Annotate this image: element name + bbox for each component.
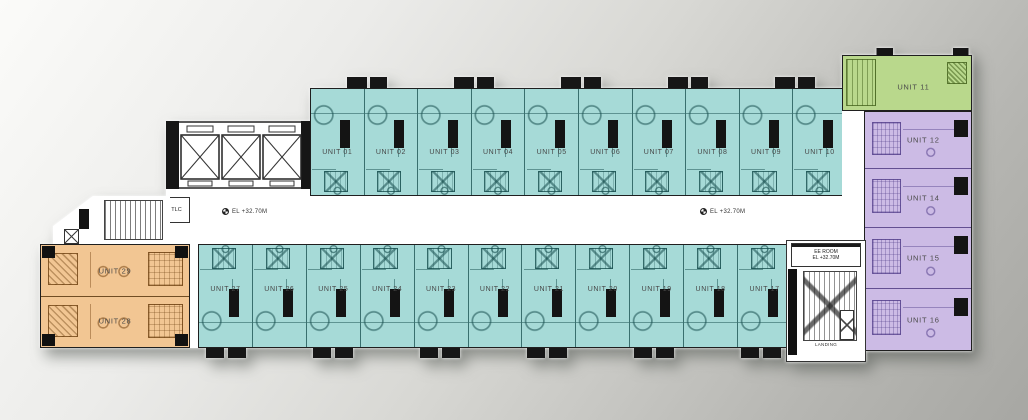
- unit-label: UNIT 17: [749, 286, 779, 293]
- unit-label: UNIT 27: [210, 286, 240, 293]
- unit-block-left: UNIT 29 UNIT 28: [40, 244, 190, 348]
- unit-floorplan-detail: [684, 245, 737, 347]
- unit-14: UNIT 14: [865, 168, 971, 227]
- unit-floorplan-detail: [576, 245, 629, 347]
- unit-floorplan-detail: [633, 89, 686, 195]
- unit-label: UNIT 18: [696, 286, 726, 293]
- unit-floorplan-detail: [307, 245, 360, 347]
- unit-06: UNIT 06: [578, 89, 632, 195]
- stair-right: EE ROOM EL +32.70M LANDING: [786, 240, 866, 362]
- unit-04: UNIT 04: [471, 89, 525, 195]
- unit-label: UNIT 19: [642, 286, 672, 293]
- unit-07: UNIT 07: [632, 89, 686, 195]
- unit-label: UNIT 15: [907, 254, 940, 263]
- unit-16: UNIT 16: [865, 288, 971, 350]
- corridor-right: [842, 111, 866, 244]
- shaft-box: [64, 229, 79, 244]
- unit-label: UNIT 02: [376, 149, 406, 156]
- unit-label: UNIT 20: [588, 286, 618, 293]
- unit-24: UNIT 24: [360, 245, 414, 347]
- unit-17: UNIT 17: [737, 245, 791, 347]
- unit-27: UNIT 27: [199, 245, 252, 347]
- ee-room-label: EE ROOM: [814, 250, 838, 255]
- unit-label: UNIT 22: [480, 286, 510, 293]
- unit-label: UNIT 25: [318, 286, 348, 293]
- unit-03: UNIT 03: [417, 89, 471, 195]
- ee-room-elevation: EL +32.70M: [813, 256, 840, 261]
- elevation-text: EL +32.70M: [232, 209, 267, 215]
- elevation-text: EL +32.70M: [710, 209, 745, 215]
- unit-floorplan-detail: [579, 89, 632, 195]
- unit-row-top: UNIT 01 UNIT 02 UNIT 03 UNIT 04 UNIT 05 …: [310, 88, 847, 196]
- stair-treads: [104, 200, 163, 240]
- unit-floorplan-detail: [418, 89, 471, 195]
- elevation-marker-icon: [700, 208, 707, 215]
- unit-18: UNIT 18: [683, 245, 737, 347]
- unit-label: UNIT 29: [99, 267, 132, 276]
- unit-01: UNIT 01: [311, 89, 364, 195]
- corridor: EL +32.70M EL +32.70M: [166, 194, 847, 244]
- unit-block-right: UNIT 12 UNIT 14 UNIT 15 UNIT 16: [864, 111, 972, 351]
- unit-floorplan-detail: [199, 245, 252, 347]
- corner-columns: [41, 245, 189, 347]
- unit-row-top-wrap: UNIT 01 UNIT 02 UNIT 03 UNIT 04 UNIT 05 …: [310, 77, 847, 196]
- floorplan: EL +32.70M EL +32.70M TLC: [0, 0, 1028, 420]
- landing-label: LANDING: [815, 342, 837, 347]
- elevator-bank-drawing: [166, 121, 314, 196]
- unit-12: UNIT 12: [865, 112, 971, 168]
- unit-label: UNIT 10: [805, 149, 835, 156]
- unit-row-bottom: UNIT 27 UNIT 26 UNIT 25 UNIT 24 UNIT 23 …: [198, 244, 792, 348]
- unit-15: UNIT 15: [865, 227, 971, 288]
- unit-floorplan-detail: [740, 89, 793, 195]
- unit-floorplan-detail: [365, 89, 418, 195]
- unit-floorplan-detail: [630, 245, 683, 347]
- elevation-label-left: EL +32.70M: [222, 208, 267, 215]
- unit-row-bottom-wrap: UNIT 27 UNIT 26 UNIT 25 UNIT 24 UNIT 23 …: [198, 244, 792, 358]
- unit-label: UNIT 16: [907, 315, 940, 324]
- structural-columns-top: [310, 77, 847, 88]
- unit-label: UNIT 23: [426, 286, 456, 293]
- elevation-marker-icon: [222, 208, 229, 215]
- structural-columns-green: [843, 48, 971, 56]
- unit-floorplan-detail: [361, 245, 414, 347]
- unit-23: UNIT 23: [414, 245, 468, 347]
- floorplan-canvas: EL +32.70M EL +32.70M TLC: [0, 0, 1028, 420]
- unit-floorplan-detail: [311, 89, 364, 195]
- unit-label: UNIT 08: [697, 149, 727, 156]
- unit-11: UNIT 11: [842, 55, 972, 111]
- unit-19: UNIT 19: [629, 245, 683, 347]
- unit-26: UNIT 26: [252, 245, 306, 347]
- elevator-bank: [166, 121, 314, 196]
- unit-label: UNIT 06: [590, 149, 620, 156]
- unit-22: UNIT 22: [468, 245, 522, 347]
- unit-floorplan-detail: [738, 245, 791, 347]
- unit-label: UNIT 11: [897, 82, 929, 91]
- unit-label: UNIT 07: [644, 149, 674, 156]
- unit-label: UNIT 26: [264, 286, 294, 293]
- unit-label: UNIT 21: [534, 286, 564, 293]
- unit-label: UNIT 01: [322, 149, 352, 156]
- unit-09: UNIT 09: [739, 89, 793, 195]
- unit-label: UNIT 28: [99, 316, 132, 325]
- elevation-label-right: EL +32.70M: [700, 208, 745, 215]
- unit-25: UNIT 25: [306, 245, 360, 347]
- unit-floorplan-detail: [522, 245, 575, 347]
- unit-label: UNIT 14: [907, 194, 940, 203]
- unit-label: UNIT 12: [907, 136, 940, 145]
- unit-floorplan-detail: [472, 89, 525, 195]
- unit-label: UNIT 03: [429, 149, 459, 156]
- unit-05: UNIT 05: [524, 89, 578, 195]
- structural-columns-bottom: [198, 348, 792, 358]
- ee-room: EE ROOM EL +32.70M: [791, 243, 861, 267]
- unit-floorplan-detail: [686, 89, 739, 195]
- unit-label: UNIT 04: [483, 149, 513, 156]
- unit-20: UNIT 20: [575, 245, 629, 347]
- tlc-label: TLC: [171, 207, 181, 213]
- unit-label: UNIT 24: [372, 286, 402, 293]
- unit-08: UNIT 08: [685, 89, 739, 195]
- unit-floorplan-detail: [415, 245, 468, 347]
- unit-10: UNIT 10: [792, 89, 846, 195]
- unit-floorplan-detail: [525, 89, 578, 195]
- shaft-box: [840, 310, 854, 340]
- unit-02: UNIT 02: [364, 89, 418, 195]
- unit-21: UNIT 21: [521, 245, 575, 347]
- unit-floorplan-detail: [469, 245, 522, 347]
- unit-label: UNIT 09: [751, 149, 781, 156]
- unit-label: UNIT 05: [537, 149, 567, 156]
- unit-floorplan-detail: [793, 89, 846, 195]
- unit-floorplan-detail: [253, 245, 306, 347]
